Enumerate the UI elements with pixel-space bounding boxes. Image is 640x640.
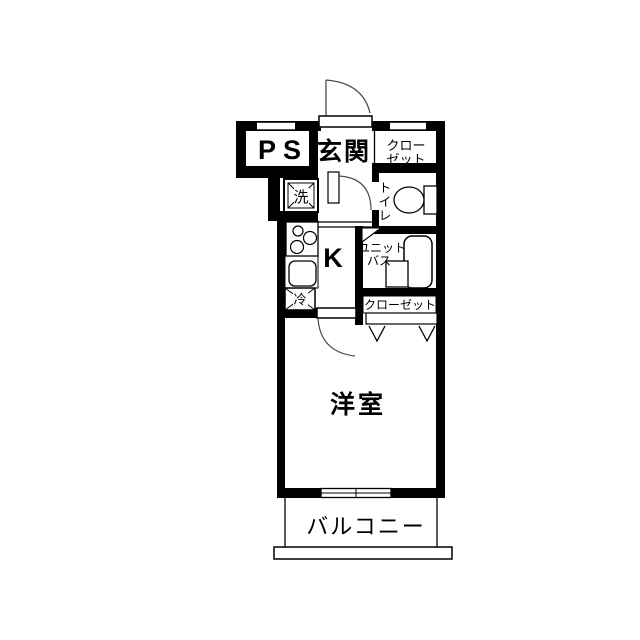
closet-window [390, 123, 426, 130]
unit-bath-label: バス [367, 254, 391, 268]
upper-closet-label: クロー [386, 138, 425, 153]
toilet-icon [394, 186, 437, 214]
room-door-icon [317, 308, 356, 356]
kitchen-label: K [323, 243, 343, 273]
western-room-label: 洋室 [330, 390, 386, 419]
stove-icon [286, 222, 318, 256]
closet-front [366, 313, 437, 324]
entrance-door-icon [319, 80, 372, 127]
floor-plan-canvas: 洗 冷 PS 玄関 クロー ゼット ト イ レ K ユニット バス クロ [0, 0, 640, 640]
fridge-label: 冷 [293, 292, 306, 307]
ps-window [257, 123, 295, 130]
upper-closet-label: ゼット [386, 152, 425, 167]
hall-door-icon [328, 172, 371, 210]
lower-closet-label: クローゼット [364, 298, 436, 312]
balcony-label: バルコニー [306, 514, 426, 539]
floor-plan: 洗 冷 PS 玄関 クロー ゼット ト イ レ K ユニット バス クロ [0, 0, 640, 640]
toilet-label: レ [379, 209, 392, 223]
entrance-label: 玄関 [317, 137, 371, 166]
washer-label: 洗 [293, 189, 308, 206]
bath-door-icon [362, 228, 381, 242]
sink-icon [289, 261, 316, 286]
toilet-label: ト [379, 181, 392, 195]
toilet-label: イ [379, 195, 392, 209]
hanger-icon [369, 326, 435, 341]
unit-bath-label: ユニット [358, 241, 406, 255]
window [321, 489, 391, 498]
ps-label: PS [258, 135, 308, 165]
balcony-rail [274, 547, 452, 559]
